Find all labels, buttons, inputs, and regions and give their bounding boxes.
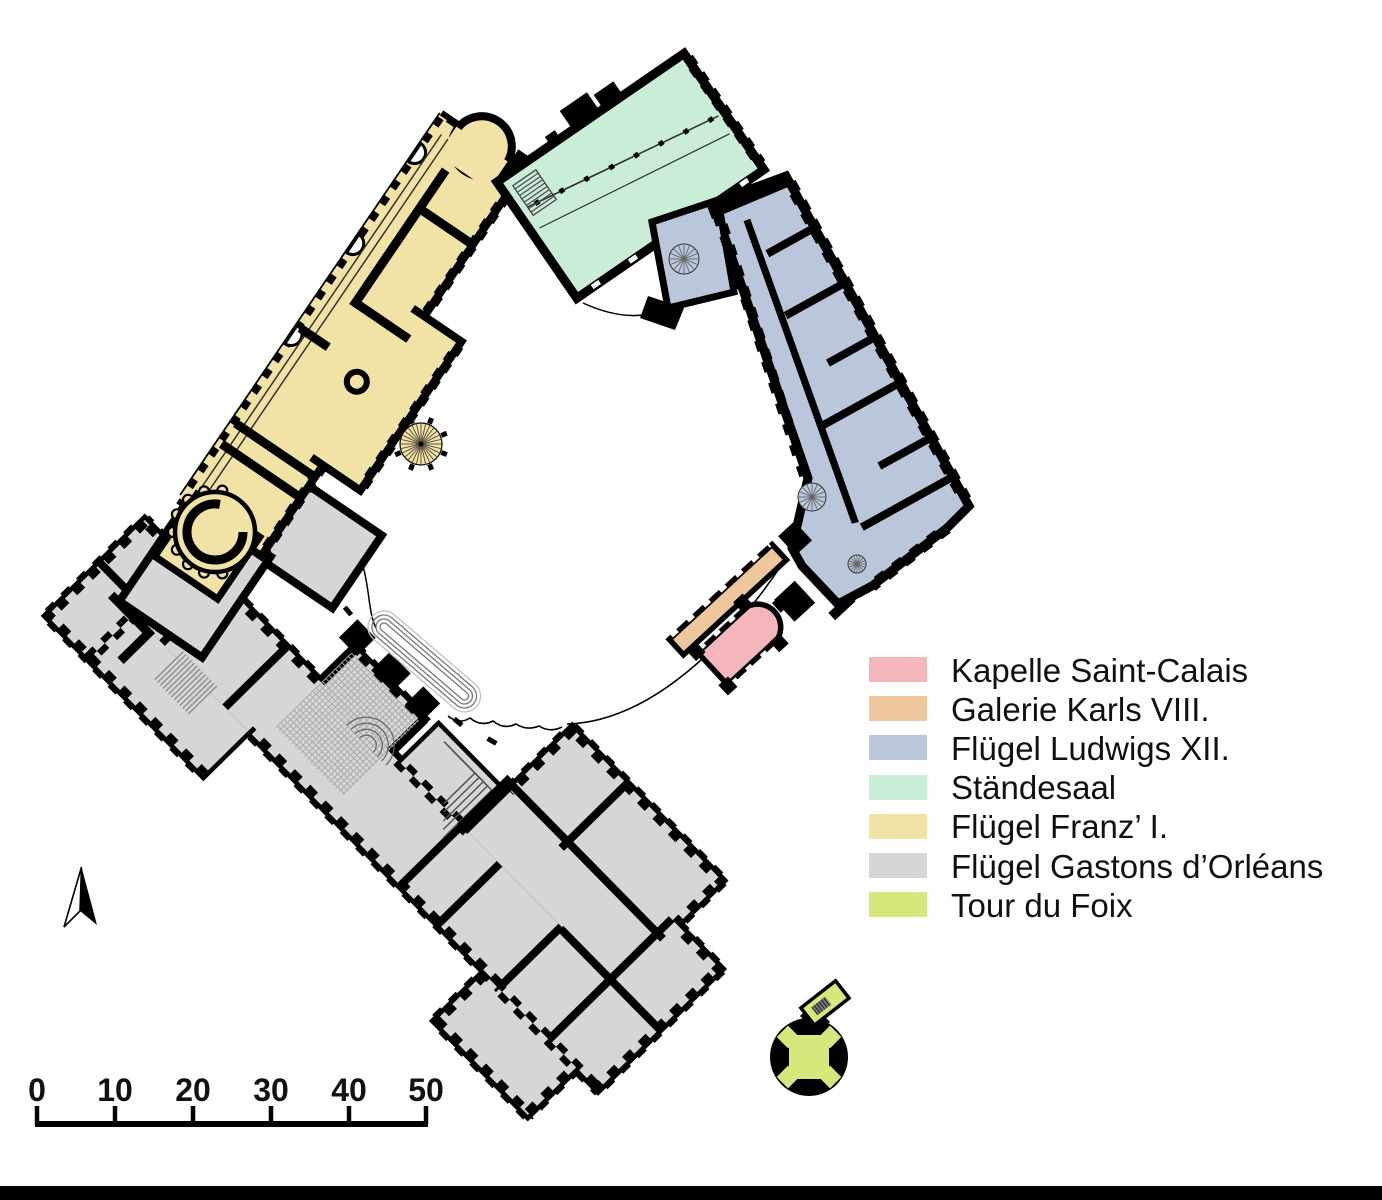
- svg-text:Flügel Franz’ I.: Flügel Franz’ I.: [951, 808, 1168, 845]
- svg-text:30: 30: [253, 1072, 289, 1108]
- svg-text:Flügel Ludwigs XII.: Flügel Ludwigs XII.: [951, 730, 1230, 767]
- svg-text:0: 0: [28, 1072, 46, 1108]
- svg-text:Flügel Gastons d’Orléans: Flügel Gastons d’Orléans: [951, 848, 1323, 885]
- svg-text:50: 50: [408, 1072, 444, 1108]
- svg-text:Galerie Karls VIII.: Galerie Karls VIII.: [951, 691, 1210, 728]
- svg-text:40: 40: [331, 1072, 367, 1108]
- svg-text:Ständesaal: Ständesaal: [951, 769, 1116, 806]
- svg-text:20: 20: [175, 1072, 211, 1108]
- svg-text:Tour du Foix: Tour du Foix: [951, 887, 1133, 924]
- svg-text:Kapelle Saint-Calais: Kapelle Saint-Calais: [951, 652, 1248, 689]
- svg-text:10: 10: [97, 1072, 133, 1108]
